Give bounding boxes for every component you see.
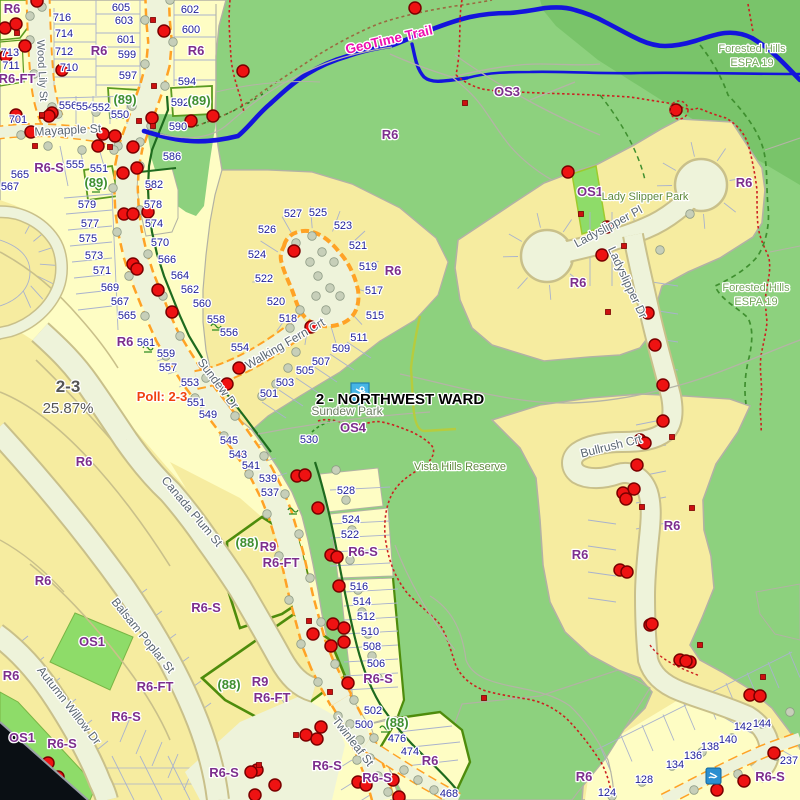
svg-text:573: 573 — [85, 250, 103, 262]
svg-text:OS1: OS1 — [577, 184, 603, 199]
svg-text:539: 539 — [259, 473, 277, 485]
svg-text:515: 515 — [366, 310, 384, 322]
svg-text:R6: R6 — [188, 43, 205, 58]
svg-text:R6-S: R6-S — [348, 544, 378, 559]
svg-text:R6-S: R6-S — [755, 769, 785, 784]
svg-text:578: 578 — [144, 199, 162, 211]
svg-text:601: 601 — [117, 34, 135, 46]
svg-text:OS3: OS3 — [494, 84, 520, 99]
svg-text:R6: R6 — [4, 1, 21, 16]
svg-text:500: 500 — [355, 719, 373, 731]
svg-text:R6: R6 — [664, 518, 681, 533]
svg-text:R6: R6 — [117, 334, 134, 349]
svg-text:524: 524 — [342, 514, 360, 526]
svg-text:552: 552 — [92, 102, 110, 114]
svg-text:(88): (88) — [235, 535, 258, 550]
svg-text:600: 600 — [182, 24, 200, 36]
svg-text:R6-FT: R6-FT — [0, 71, 35, 86]
svg-text:556: 556 — [59, 100, 77, 112]
svg-text:565: 565 — [11, 169, 29, 181]
svg-text:R6-S: R6-S — [111, 709, 141, 724]
svg-text:R6-S: R6-S — [191, 600, 221, 615]
svg-text:476: 476 — [388, 733, 406, 745]
svg-text:Vista Hills Reserve: Vista Hills Reserve — [414, 461, 506, 473]
svg-text:512: 512 — [357, 611, 375, 623]
svg-text:574: 574 — [145, 218, 163, 230]
svg-text:592: 592 — [171, 97, 189, 109]
svg-text:124: 124 — [598, 787, 616, 799]
svg-text:508: 508 — [363, 641, 381, 653]
svg-text:R6-FT: R6-FT — [263, 555, 300, 570]
svg-text:714: 714 — [55, 28, 73, 40]
svg-text:R6: R6 — [76, 454, 93, 469]
svg-text:564: 564 — [171, 270, 189, 282]
svg-text:530: 530 — [300, 434, 318, 446]
svg-text:520: 520 — [267, 296, 285, 308]
svg-text:509: 509 — [332, 343, 350, 355]
svg-text:602: 602 — [181, 4, 199, 16]
svg-text:571: 571 — [93, 265, 111, 277]
svg-text:518: 518 — [279, 313, 297, 325]
svg-text:522: 522 — [341, 529, 359, 541]
svg-text:R6: R6 — [382, 127, 399, 142]
svg-text:519: 519 — [359, 261, 377, 273]
svg-text:2-3: 2-3 — [56, 377, 81, 396]
svg-text:Sundew Park: Sundew Park — [311, 404, 383, 418]
svg-text:R6-S: R6-S — [47, 736, 77, 751]
svg-text:599: 599 — [118, 49, 136, 61]
svg-text:506: 506 — [367, 658, 385, 670]
svg-text:514: 514 — [353, 596, 371, 608]
svg-text:559: 559 — [157, 348, 175, 360]
svg-text:528: 528 — [337, 485, 355, 497]
svg-text:527: 527 — [284, 208, 302, 220]
svg-text:562: 562 — [181, 284, 199, 296]
svg-text:545: 545 — [220, 435, 238, 447]
svg-text:716: 716 — [53, 12, 71, 24]
svg-text:Forested Hills: Forested Hills — [722, 282, 790, 294]
svg-text:551: 551 — [187, 397, 205, 409]
svg-text:575: 575 — [79, 233, 97, 245]
svg-text:594: 594 — [178, 76, 196, 88]
svg-text:(89): (89) — [84, 175, 107, 190]
svg-text:549: 549 — [199, 409, 217, 421]
svg-text:R6-FT: R6-FT — [254, 690, 291, 705]
svg-text:701: 701 — [9, 114, 27, 126]
svg-text:507: 507 — [312, 356, 330, 368]
svg-text:R6-S: R6-S — [34, 160, 64, 175]
svg-text:525: 525 — [309, 207, 327, 219]
svg-text:537: 537 — [261, 487, 279, 499]
svg-text:R6-S: R6-S — [362, 770, 392, 785]
svg-text:R6-S: R6-S — [209, 765, 239, 780]
svg-text:R6: R6 — [385, 263, 402, 278]
svg-text:526: 526 — [258, 224, 276, 236]
svg-text:555: 555 — [66, 159, 84, 171]
svg-text:561: 561 — [137, 337, 155, 349]
svg-text:553: 553 — [181, 377, 199, 389]
svg-text:523: 523 — [334, 220, 352, 232]
svg-text:R6-S: R6-S — [363, 671, 393, 686]
svg-text:ESPA 19: ESPA 19 — [734, 296, 777, 308]
svg-text:560: 560 — [193, 298, 211, 310]
svg-text:557: 557 — [159, 362, 177, 374]
svg-text:R9: R9 — [252, 674, 269, 689]
svg-text:603: 603 — [115, 15, 133, 27]
svg-text:(89): (89) — [187, 93, 210, 108]
svg-text:586: 586 — [163, 151, 181, 163]
svg-text:566: 566 — [158, 254, 176, 266]
svg-text:(89): (89) — [113, 92, 136, 107]
svg-text:521: 521 — [349, 240, 367, 252]
svg-text:474: 474 — [401, 746, 419, 758]
svg-text:142: 142 — [734, 721, 752, 733]
svg-text:710: 710 — [60, 62, 78, 74]
svg-text:579: 579 — [78, 199, 96, 211]
svg-text:128: 128 — [635, 774, 653, 786]
svg-text:570: 570 — [151, 237, 169, 249]
svg-text:468: 468 — [440, 788, 458, 800]
svg-text:R6: R6 — [3, 668, 20, 683]
svg-text:(88): (88) — [385, 715, 408, 730]
svg-text:237: 237 — [780, 755, 798, 767]
svg-text:550: 550 — [111, 109, 129, 121]
svg-text:(88): (88) — [217, 677, 240, 692]
svg-text:Poll: 2-3: Poll: 2-3 — [137, 389, 188, 404]
svg-text:597: 597 — [119, 70, 137, 82]
svg-text:R6: R6 — [422, 753, 439, 768]
svg-text:138: 138 — [701, 741, 719, 753]
svg-text:511: 511 — [350, 332, 368, 344]
svg-text:569: 569 — [101, 282, 119, 294]
svg-text:551: 551 — [90, 163, 108, 175]
svg-text:R6: R6 — [570, 275, 587, 290]
svg-text:712: 712 — [55, 46, 73, 58]
svg-text:510: 510 — [361, 626, 379, 638]
svg-text:Forested Hills: Forested Hills — [718, 43, 786, 55]
svg-text:OS4: OS4 — [340, 420, 367, 435]
svg-text:567: 567 — [111, 296, 129, 308]
svg-text:136: 136 — [684, 750, 702, 762]
svg-text:R6-FT: R6-FT — [137, 679, 174, 694]
svg-text:Lady Slipper Park: Lady Slipper Park — [602, 191, 689, 203]
svg-text:R9: R9 — [260, 539, 277, 554]
svg-text:524: 524 — [248, 249, 266, 261]
svg-text:605: 605 — [112, 2, 130, 14]
svg-text:OS1: OS1 — [79, 634, 105, 649]
svg-text:140: 140 — [719, 734, 737, 746]
svg-text:522: 522 — [255, 273, 273, 285]
svg-text:582: 582 — [145, 179, 163, 191]
svg-text:OS1: OS1 — [9, 730, 35, 745]
svg-text:144: 144 — [753, 718, 771, 730]
svg-text:558: 558 — [207, 314, 225, 326]
svg-text:R6-S: R6-S — [312, 758, 342, 773]
svg-text:567: 567 — [1, 181, 19, 193]
svg-text:25.87%: 25.87% — [43, 400, 94, 417]
svg-text:713: 713 — [1, 47, 19, 59]
svg-text:556: 556 — [220, 327, 238, 339]
svg-text:505: 505 — [296, 365, 314, 377]
svg-text:R6: R6 — [736, 175, 753, 190]
svg-text:R6: R6 — [572, 547, 589, 562]
svg-text:ESPA 19: ESPA 19 — [730, 57, 773, 69]
svg-text:541: 541 — [242, 460, 260, 472]
svg-text:134: 134 — [666, 759, 684, 771]
svg-text:503: 503 — [276, 377, 294, 389]
svg-text:516: 516 — [350, 581, 368, 593]
svg-text:554: 554 — [231, 342, 249, 354]
svg-text:R6: R6 — [35, 573, 52, 588]
svg-text:502: 502 — [364, 705, 382, 717]
svg-text:577: 577 — [81, 218, 99, 230]
svg-text:565: 565 — [118, 310, 136, 322]
svg-text:R6: R6 — [576, 769, 593, 784]
svg-text:501: 501 — [260, 388, 278, 400]
svg-text:590: 590 — [169, 121, 187, 133]
svg-text:517: 517 — [365, 285, 383, 297]
svg-text:R6: R6 — [91, 43, 108, 58]
